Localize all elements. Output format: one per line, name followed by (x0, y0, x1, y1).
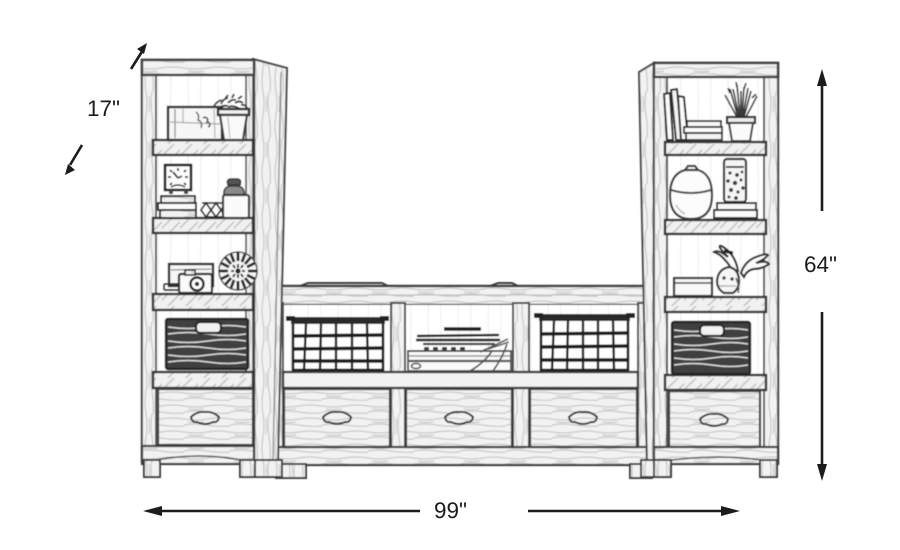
svg-text:99": 99" (434, 498, 467, 523)
svg-text:64": 64" (804, 252, 837, 277)
svg-text:17": 17" (87, 96, 120, 121)
